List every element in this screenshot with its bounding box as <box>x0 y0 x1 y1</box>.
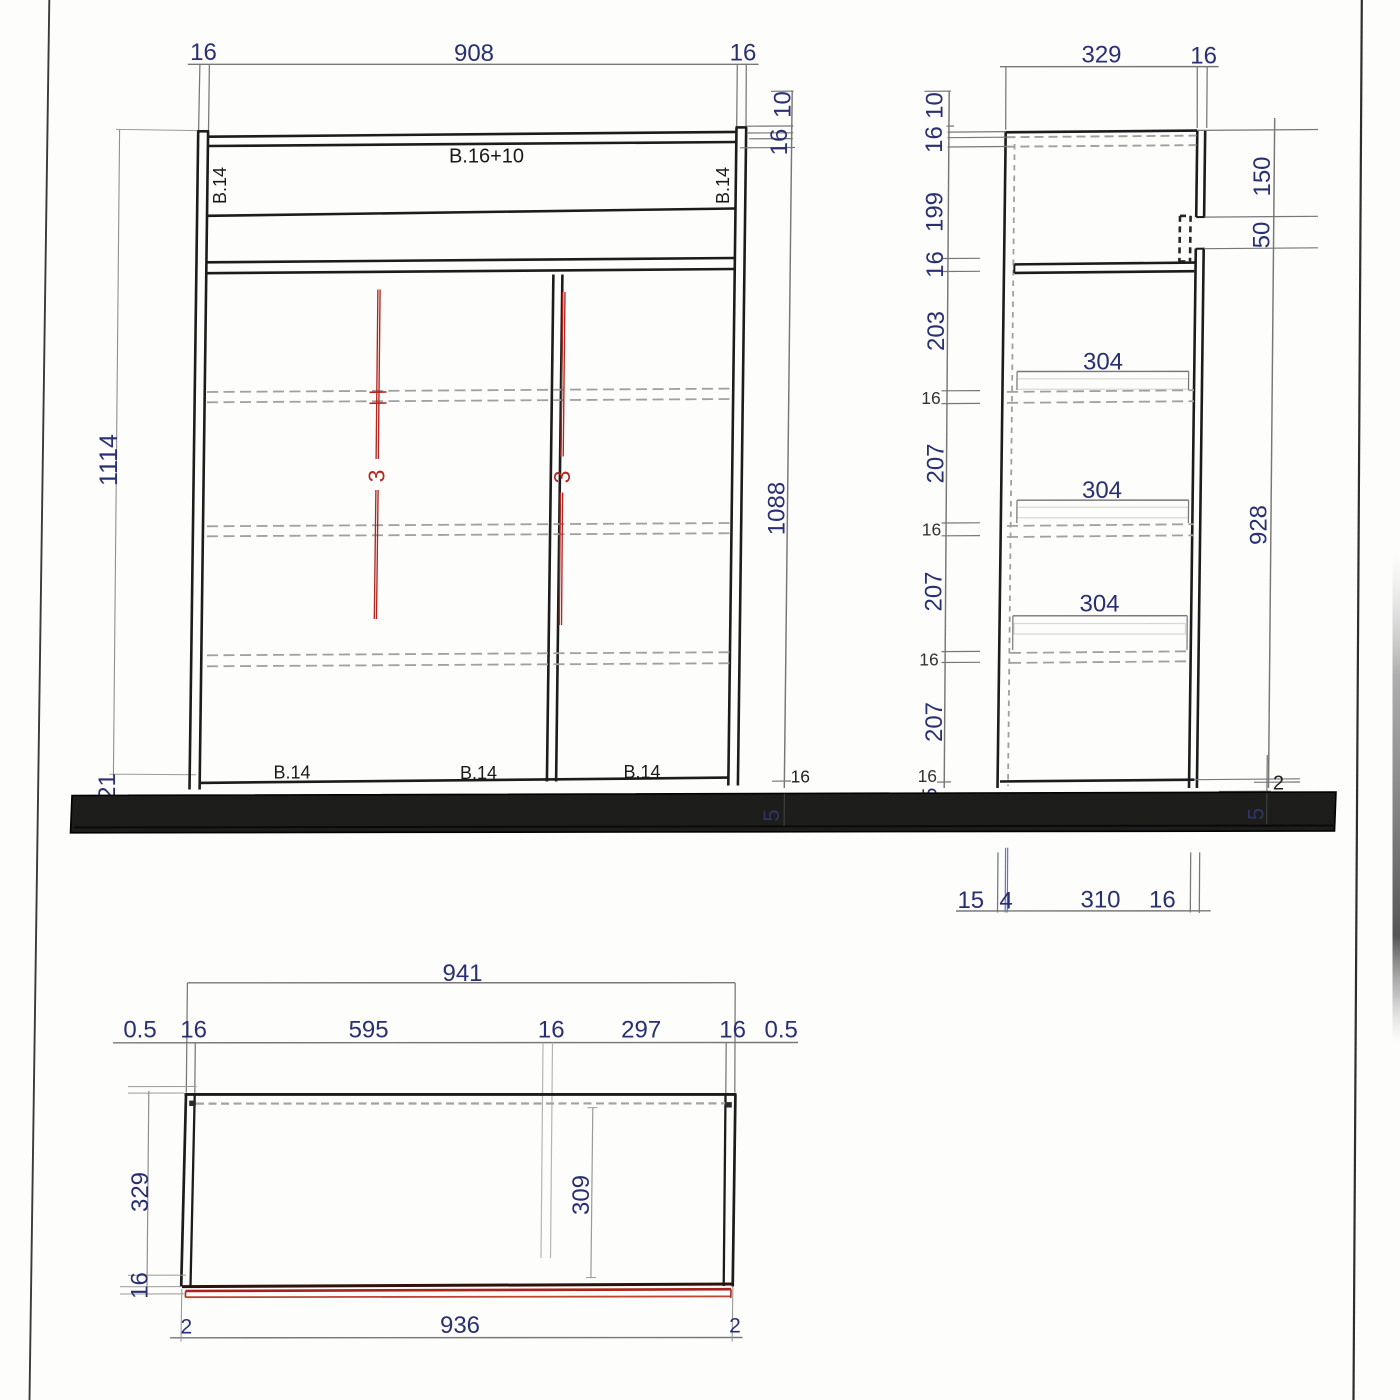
svg-text:5: 5 <box>1243 808 1268 820</box>
svg-text:B.14: B.14 <box>623 762 660 782</box>
svg-text:304: 304 <box>1083 348 1123 375</box>
svg-text:10: 10 <box>922 92 949 119</box>
svg-text:329: 329 <box>1081 42 1121 69</box>
svg-text:203: 203 <box>923 311 950 351</box>
svg-text:150: 150 <box>1249 156 1276 196</box>
svg-text:16: 16 <box>180 1016 207 1043</box>
svg-text:297: 297 <box>621 1017 661 1044</box>
svg-text:309: 309 <box>568 1175 595 1215</box>
svg-text:0.5: 0.5 <box>765 1016 798 1043</box>
svg-text:16: 16 <box>791 767 810 787</box>
svg-text:10: 10 <box>770 91 797 118</box>
svg-text:595: 595 <box>349 1016 389 1043</box>
svg-text:16: 16 <box>766 129 793 156</box>
svg-text:207: 207 <box>921 571 948 611</box>
svg-text:2: 2 <box>1273 772 1284 794</box>
svg-text:199: 199 <box>922 192 949 232</box>
svg-text:B.16+10: B.16+10 <box>449 146 524 168</box>
svg-text:15: 15 <box>957 887 984 914</box>
svg-text:16: 16 <box>922 519 941 539</box>
svg-text:329: 329 <box>127 1172 154 1212</box>
svg-text:B.14: B.14 <box>273 763 310 783</box>
svg-text:2: 2 <box>180 1316 192 1339</box>
svg-text:1088: 1088 <box>764 482 791 535</box>
svg-text:16: 16 <box>730 40 757 67</box>
svg-text:936: 936 <box>440 1312 480 1339</box>
svg-text:16: 16 <box>538 1016 565 1043</box>
svg-text:16: 16 <box>190 39 217 66</box>
svg-text:16: 16 <box>921 126 948 153</box>
svg-text:16: 16 <box>719 1017 746 1044</box>
svg-text:207: 207 <box>923 443 950 483</box>
svg-text:1114: 1114 <box>95 434 123 486</box>
svg-text:3: 3 <box>364 470 390 483</box>
svg-text:B.14: B.14 <box>460 763 497 783</box>
svg-text:310: 310 <box>1080 887 1120 914</box>
svg-text:3: 3 <box>549 471 575 484</box>
svg-text:908: 908 <box>454 40 494 67</box>
svg-text:16: 16 <box>1149 887 1176 914</box>
svg-text:16: 16 <box>921 388 940 408</box>
svg-text:304: 304 <box>1082 477 1122 504</box>
svg-text:304: 304 <box>1079 591 1119 618</box>
svg-text:B.14: B.14 <box>713 167 733 204</box>
svg-text:4: 4 <box>999 888 1012 915</box>
svg-text:16: 16 <box>127 1272 154 1299</box>
svg-text:16: 16 <box>1190 43 1217 70</box>
svg-text:941: 941 <box>442 960 482 987</box>
svg-text:5: 5 <box>759 809 784 821</box>
svg-text:16: 16 <box>919 650 938 670</box>
svg-text:16: 16 <box>922 251 949 278</box>
svg-text:207: 207 <box>921 702 948 742</box>
svg-text:0.5: 0.5 <box>123 1016 156 1043</box>
svg-text:928: 928 <box>1246 505 1273 545</box>
svg-text:2: 2 <box>729 1315 741 1338</box>
svg-text:B.14: B.14 <box>210 167 230 204</box>
svg-text:16: 16 <box>918 766 937 786</box>
svg-text:50: 50 <box>1249 222 1276 249</box>
